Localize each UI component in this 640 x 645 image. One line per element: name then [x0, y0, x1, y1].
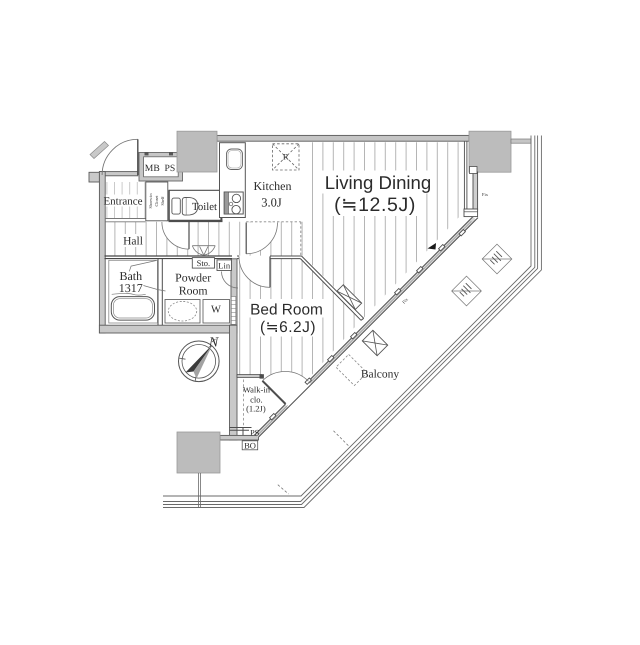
- svg-text:Shoes-in: Shoes-in: [148, 193, 153, 209]
- svg-text:1317: 1317: [119, 281, 143, 295]
- svg-text:Sto.: Sto.: [197, 258, 210, 268]
- svg-text:Walk-in: Walk-in: [243, 385, 271, 395]
- svg-text:Living Dining: Living Dining: [325, 172, 431, 193]
- svg-text:Balcony: Balcony: [361, 369, 400, 381]
- svg-text:Kitchen: Kitchen: [254, 179, 292, 193]
- svg-text:BO: BO: [244, 440, 256, 450]
- svg-text:N: N: [208, 336, 219, 351]
- svg-text:Entrance: Entrance: [103, 196, 142, 208]
- svg-text:MB PS: MB PS: [145, 163, 175, 174]
- svg-text:(≒6.2J): (≒6.2J): [260, 319, 316, 336]
- svg-text:Bed Room: Bed Room: [250, 302, 323, 319]
- svg-text:Room: Room: [179, 284, 208, 298]
- svg-text:Fix: Fix: [482, 192, 489, 197]
- svg-text:Powder: Powder: [175, 271, 211, 285]
- svg-text:Shelf: Shelf: [160, 196, 165, 206]
- svg-text:Closet: Closet: [154, 195, 159, 207]
- svg-text:Toilet: Toilet: [192, 201, 217, 213]
- svg-text:(1.2J): (1.2J): [246, 404, 266, 414]
- svg-text:Lin: Lin: [218, 260, 231, 270]
- svg-text:R: R: [283, 152, 289, 162]
- svg-text:PS: PS: [250, 428, 260, 438]
- svg-text:W: W: [211, 305, 221, 316]
- svg-text:3.0J: 3.0J: [261, 196, 282, 210]
- svg-text:(≒12.5J): (≒12.5J): [334, 194, 416, 216]
- svg-text:Hall: Hall: [123, 236, 143, 248]
